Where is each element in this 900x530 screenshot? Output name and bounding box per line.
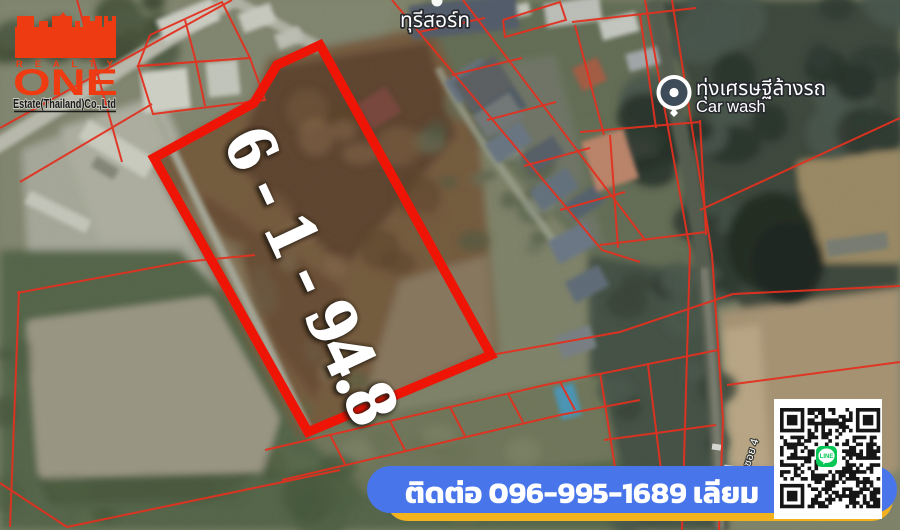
svg-text:Estate(Thailand)Co.,Ltd: Estate(Thailand)Co.,Ltd [13, 97, 116, 111]
svg-text:LINE: LINE [820, 454, 834, 460]
svg-text:Car wash: Car wash [696, 98, 766, 116]
